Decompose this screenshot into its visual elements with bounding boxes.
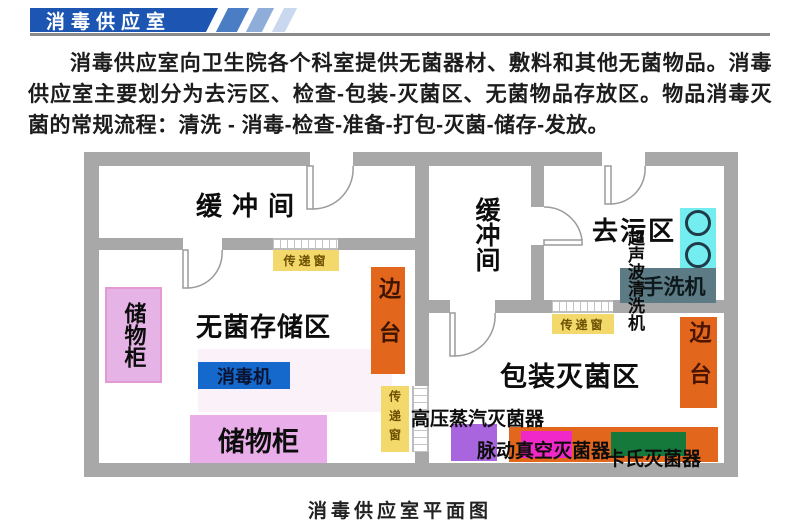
banner-stripe-icon <box>216 8 249 32</box>
wall <box>531 245 544 313</box>
banner-stripe-icon <box>246 8 274 32</box>
pass-window-middle: 传递窗 <box>381 386 409 452</box>
storage-cabinet-bottom: 储物柜 <box>190 415 327 463</box>
side-table-inner: 边台 <box>371 267 405 374</box>
wall <box>353 152 602 166</box>
wall <box>222 238 273 250</box>
wall <box>84 152 310 166</box>
header-divider <box>30 33 770 36</box>
disinfector-label: 消毒机 <box>217 363 271 389</box>
storage-cabinet-left: 储物柜 <box>105 287 162 383</box>
storage-cabinet-label: 储物柜 <box>118 302 150 368</box>
intro-paragraph: 消毒供应室向卫生院各个科室提供无菌器材、敷料和其他无菌物品。消毒供应室主要划分为… <box>28 48 772 141</box>
window-icon <box>552 300 613 313</box>
pass-window-label: 传递窗 <box>283 252 328 269</box>
wall <box>724 152 738 477</box>
wall <box>99 238 183 250</box>
banner-stripe-icon <box>272 8 297 32</box>
sink-basin-icon <box>685 242 711 268</box>
disinfector-box: 消毒机 <box>198 362 290 389</box>
pass-window-label: 传递窗 <box>387 390 404 448</box>
room-label-buffer-middle: 缓冲间 <box>468 197 504 272</box>
header-banner: 消毒供应室 <box>30 8 218 32</box>
wall <box>531 166 544 207</box>
room-label-buffer-left: 缓冲间 <box>196 186 304 223</box>
pulse-vacuum-sterilizer-label: 脉动真空灭菌器 <box>477 436 610 463</box>
plan-caption: 消毒供应室平面图 <box>0 496 800 523</box>
room-label-sterile-storage: 无菌存储区 <box>196 307 331 344</box>
steam-sterilizer-label: 高压蒸汽灭菌器 <box>411 404 544 431</box>
cassette-sterilizer-label: 卡氏灭菌器 <box>606 444 701 471</box>
pass-window-label: 传递窗 <box>560 316 605 333</box>
wall <box>338 238 415 250</box>
wash-sink-unit <box>680 208 716 269</box>
wall <box>429 300 450 313</box>
side-table-label: 边台 <box>372 277 404 365</box>
side-table-label: 边台 <box>683 321 715 405</box>
storage-cabinet-label: 储物柜 <box>218 420 299 459</box>
wall <box>84 152 99 477</box>
page-title: 消毒供应室 <box>46 7 171 34</box>
pass-window-left: 传递窗 <box>273 250 339 271</box>
room-label-packing-sterilization: 包装灭菌区 <box>500 355 640 394</box>
sink-basin-icon <box>685 210 711 236</box>
ultrasonic-cleaner-label: 超声波清洗机 <box>622 229 647 331</box>
side-table-right: 边台 <box>680 317 717 408</box>
window-icon <box>273 238 338 250</box>
page: 消毒供应室 消毒供应室向卫生院各个科室提供无菌器材、敷料和其他无菌物品。消毒供应… <box>0 0 800 531</box>
pass-window-right: 传递窗 <box>552 314 614 334</box>
